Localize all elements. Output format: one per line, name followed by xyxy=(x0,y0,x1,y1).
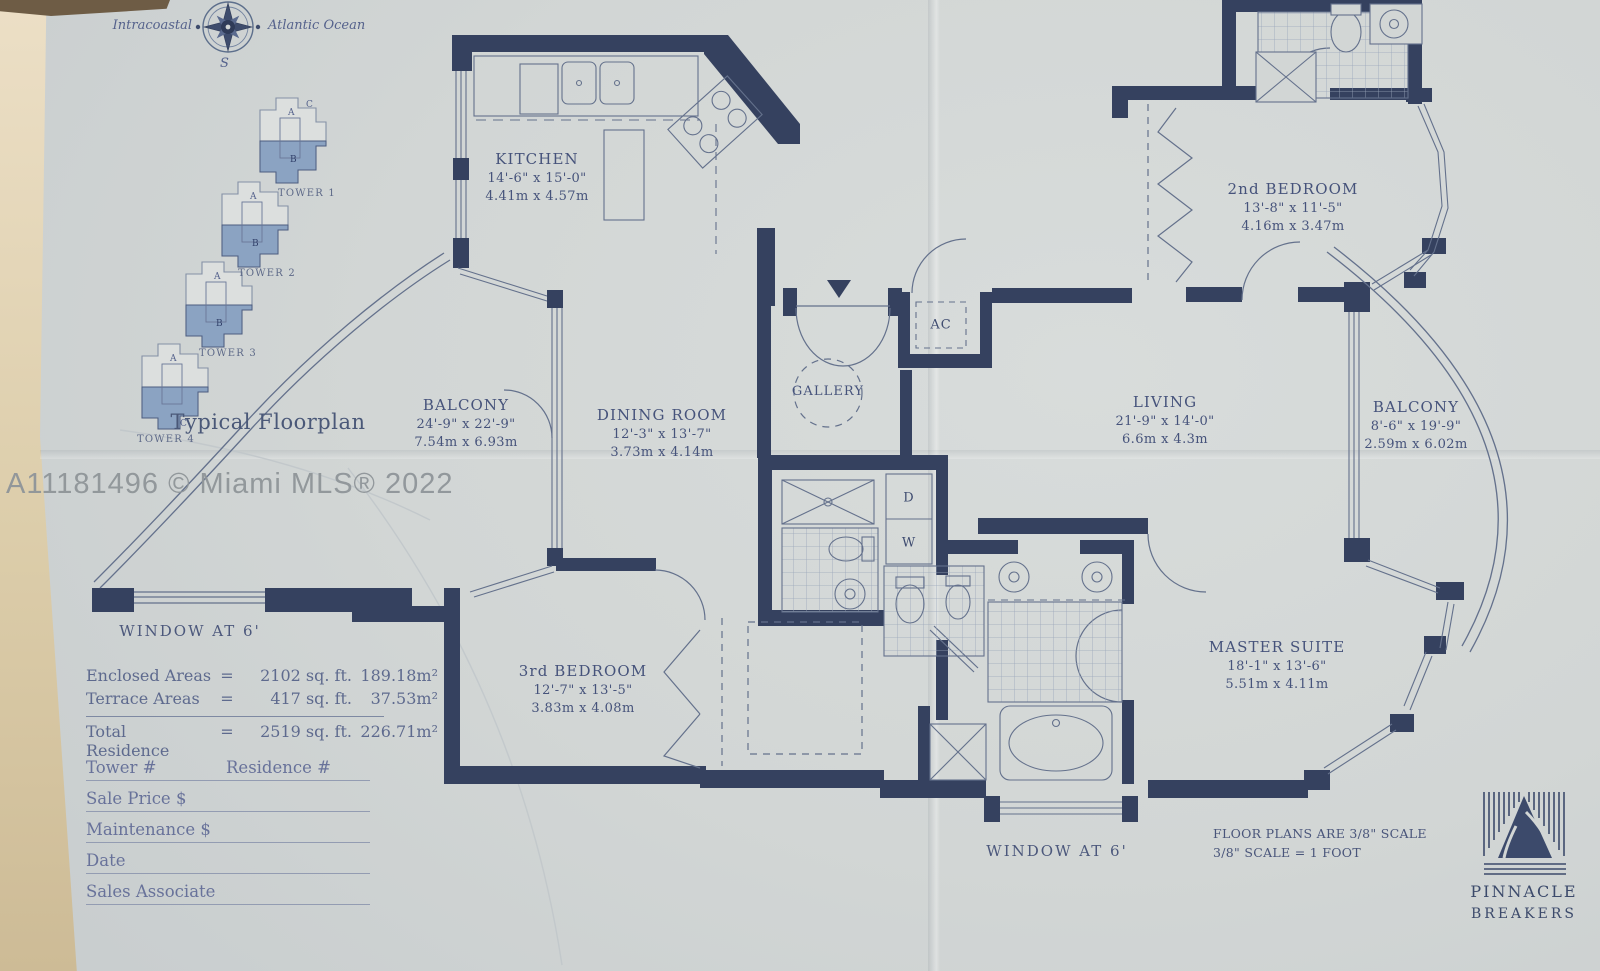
room-label-dining: DINING ROOM 12'-3" x 13'-7" 3.73m x 4.14… xyxy=(597,406,727,460)
scale-note-line1: FLOOR PLANS ARE 3/8" SCALE xyxy=(1213,824,1427,843)
tower-4-label: TOWER 4 xyxy=(137,434,195,445)
room-label-gallery: GALLERY xyxy=(792,384,864,399)
room-label-bed3: 3rd BEDROOM 12'-7" x 13'-5" 3.83m x 4.08… xyxy=(519,662,647,716)
areas-row-sqm: 189.18m² xyxy=(352,666,438,689)
form-sales-associate-label: Sales Associate xyxy=(86,882,215,901)
unit-letter-b: B xyxy=(252,239,259,249)
unit-letter-c: C xyxy=(306,100,313,110)
window-note-bottom: WINDOW AT 6' xyxy=(986,842,1127,860)
form-date-label: Date xyxy=(86,851,125,870)
compass-south-label: S xyxy=(220,56,229,71)
room-label-living: LIVING 21'-9" x 14'-0" 6.6m x 4.3m xyxy=(1115,393,1214,447)
brand-pinnacle: PINNACLE xyxy=(1470,882,1577,901)
tower-keyplans: A C B A B A B A xyxy=(142,98,326,429)
form-residence-label: Residence # xyxy=(226,758,331,777)
pinnacle-logo-mark xyxy=(1484,792,1566,874)
form-line-2 xyxy=(86,811,370,812)
room-label-bed2: 2nd BEDROOM 13'-8" x 11'-5" 4.16m x 3.47… xyxy=(1228,180,1359,234)
areas-table: Enclosed Areas = 2102 sq. ft. 189.18m² T… xyxy=(86,666,438,712)
areas-total-label: Total Residence xyxy=(86,722,214,745)
room-label-kitchen: KITCHEN 14'-6" x 15'-0" 4.41m x 4.57m xyxy=(485,150,588,204)
areas-total-sqft: 2519 sq. ft. xyxy=(240,722,352,745)
tower-1-footprint: A C B xyxy=(260,98,326,183)
room-label-master: MASTER SUITE 18'-1" x 13'-6" 5.51m x 4.1… xyxy=(1209,638,1345,692)
mls-watermark: A11181496 © Miami MLS® 2022 xyxy=(6,468,454,501)
areas-row-label: Terrace Areas xyxy=(86,689,214,712)
compass-east-label: Atlantic Ocean xyxy=(268,18,365,33)
brand-breakers: BREAKERS xyxy=(1471,906,1577,922)
form-tower-label: Tower # xyxy=(86,758,157,777)
scale-note: FLOOR PLANS ARE 3/8" SCALE 3/8" SCALE = … xyxy=(1213,824,1427,862)
window-note-left: WINDOW AT 6' xyxy=(119,622,260,640)
areas-total-sqm: 226.71m² xyxy=(352,722,438,745)
unit-letter-a: A xyxy=(287,108,295,118)
areas-table-divider xyxy=(86,716,384,717)
form-line-4 xyxy=(86,873,370,874)
compass-rose xyxy=(196,2,260,52)
ac-label: AC xyxy=(930,318,951,333)
dryer-label: D xyxy=(903,491,914,506)
unit-letter-b: B xyxy=(216,319,223,329)
form-maintenance-label: Maintenance $ xyxy=(86,820,211,839)
floorplan-photo: A C B A B A B A xyxy=(0,0,1600,971)
tower-3-label: TOWER 3 xyxy=(199,348,257,359)
room-label-balcony-left: BALCONY 24'-9" x 22'-9" 7.54m x 6.93m xyxy=(414,396,517,450)
left-window-wall xyxy=(92,588,456,622)
room-label-balcony-right: BALCONY 8'-6" x 19'-9" 2.59m x 6.02m xyxy=(1364,398,1467,452)
tower-1-label: TOWER 1 xyxy=(278,188,336,199)
washer-label: W xyxy=(902,536,916,551)
unit-letter-a: A xyxy=(169,354,177,364)
unit-letter-b: B xyxy=(290,155,297,165)
areas-table-total: Total Residence = 2519 sq. ft. 226.71m² xyxy=(86,722,438,745)
entry-arrow xyxy=(827,280,851,298)
scale-note-line2: 3/8" SCALE = 1 FOOT xyxy=(1213,843,1427,862)
compass-west-label: Intracoastal xyxy=(113,18,192,33)
unit-letter-a: A xyxy=(213,272,221,282)
areas-row-label: Enclosed Areas xyxy=(86,666,214,689)
form-sale-price-label: Sale Price $ xyxy=(86,789,186,808)
areas-row-sqft: 417 sq. ft. xyxy=(240,689,352,712)
areas-row-sqft: 2102 sq. ft. xyxy=(240,666,352,689)
form-line-1 xyxy=(86,780,370,781)
unit-letter-a: A xyxy=(249,192,257,202)
areas-row-sqm: 37.53m² xyxy=(352,689,438,712)
form-line-5 xyxy=(86,904,370,905)
form-line-3 xyxy=(86,842,370,843)
keyplan-title: Typical Floorplan xyxy=(170,410,365,434)
tower-2-label: TOWER 2 xyxy=(238,268,296,279)
